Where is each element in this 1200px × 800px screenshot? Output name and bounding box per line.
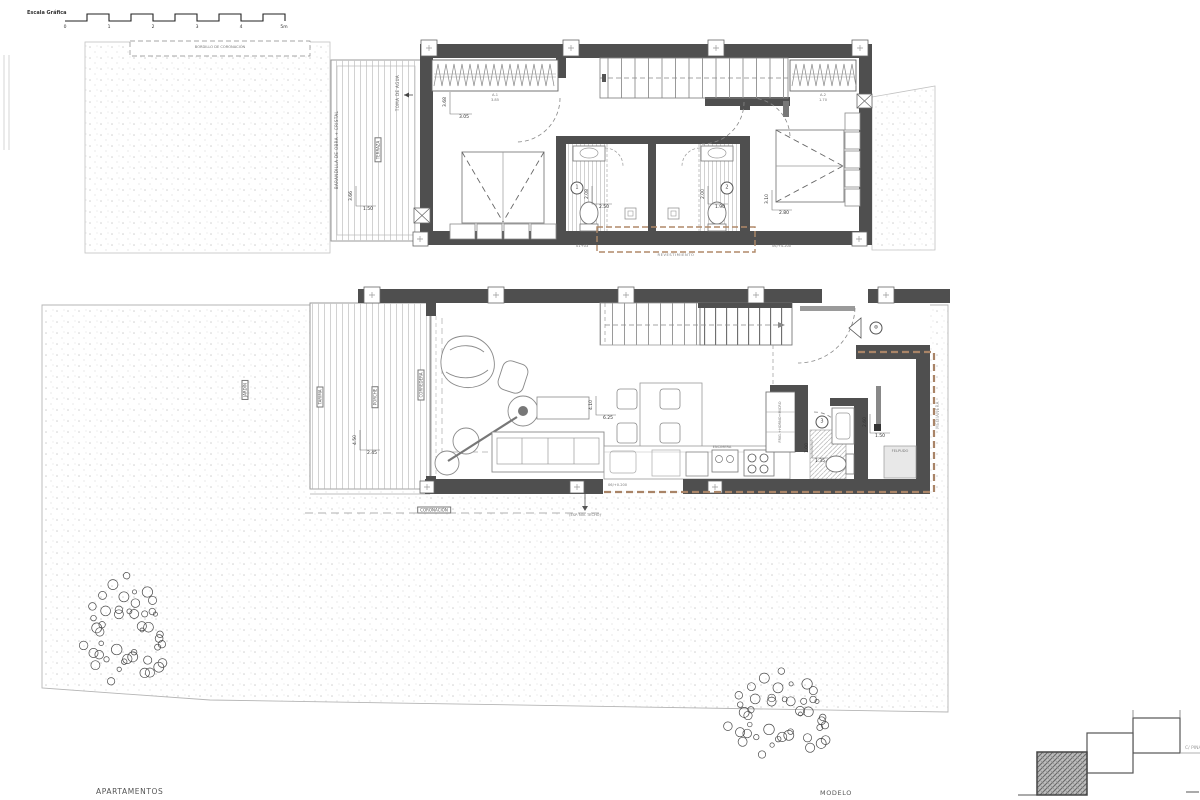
bedroom-1-dim-h: 3.05	[459, 116, 469, 121]
bedroom-2-dim-h: 2.80	[779, 212, 789, 217]
cladding-label: REVESTIMIENTO	[658, 254, 695, 258]
scale-tick-5: 5m	[280, 26, 287, 31]
key-plan	[1018, 710, 1200, 795]
bath-1-dim-h: 2.50	[599, 206, 609, 211]
deck-dim-h: 2.45	[367, 452, 377, 457]
scale-tick-2: 2	[152, 26, 155, 31]
porch-label: PORCHE	[372, 386, 379, 408]
doormat-label: FELPUDO	[892, 450, 909, 454]
project-title: APARTAMENTOS	[96, 788, 163, 796]
bath-3-dim-v: 1.00	[806, 443, 811, 453]
bath-1-dim-v: 2.08	[586, 189, 591, 199]
hall-dim-h: 1.50	[875, 435, 885, 440]
bath-1-number: 1	[571, 182, 584, 195]
tall-units-label: FRIG.+HORNO+MICRO	[779, 401, 783, 442]
living-dim-v: 4.10	[590, 400, 595, 410]
terrace-label: TERRAZA	[375, 138, 382, 163]
scale-bar-title: Escala Gráfica	[27, 11, 67, 16]
ground-floor-plan	[42, 287, 950, 758]
water-tap-label: TOMA DE AGUA	[396, 75, 400, 111]
pergola-label: BORDILLO DE CORONACIÓN	[195, 46, 245, 50]
terrace-dim-v: 3.66	[350, 191, 355, 201]
scale-bar-graphic	[65, 14, 285, 21]
garden-label: JARDÍN	[242, 380, 249, 400]
bath-2-number: 2	[721, 182, 734, 195]
bath-2-dim-h: 1.90	[715, 206, 725, 211]
ceiling-note: (ESP. NIV. TECHO)	[569, 514, 601, 518]
ground-level-note: 06/+0.200	[608, 484, 627, 488]
bath-2-dim-v: 2.00	[702, 189, 707, 199]
counter-label: ENCIMERA	[713, 446, 732, 450]
deck-label: TARIMA	[317, 386, 324, 407]
railing-label: BARANDILLA DE OBRA + CRISTAL	[335, 111, 339, 189]
scale-tick-0: 0	[64, 26, 67, 31]
coping-label: CORONACIÓN	[417, 507, 451, 514]
deck-dim-v: 4.50	[354, 435, 359, 445]
boundary-label: MEDIANERA	[936, 401, 940, 428]
scale-tick-3: 3	[196, 26, 199, 31]
floor-plan-drawing	[0, 0, 1200, 800]
scale-tick-4: 4	[240, 26, 243, 31]
upper-floor-plan	[85, 40, 935, 253]
hall-dim-v: 2.60	[864, 417, 869, 427]
model-title: MODELO	[820, 790, 852, 797]
street-label: C/ PINA	[1185, 747, 1200, 752]
bedroom-2-dim-v: 3.10	[766, 194, 771, 204]
terrace-dim-h: 1.50	[363, 208, 373, 213]
upper-level-note: 06/+4.200	[772, 245, 791, 249]
upper-note-left: 01+03	[576, 245, 588, 249]
slider-label: CORREDERA	[418, 370, 425, 401]
living-dim-h: 6.25	[603, 417, 613, 422]
bath-3-number: 3	[816, 416, 829, 429]
wardrobe-1-width: 3.85	[491, 99, 499, 103]
scale-tick-1: 1	[108, 26, 111, 31]
bedroom-1-dim-v: 3.68	[444, 97, 449, 107]
floor-plan-sheet: Escala Gráfica 0 1 2 3 4 5m BORDILLO DE …	[0, 0, 1200, 800]
entry-symbol: ⊛	[870, 322, 883, 335]
bath-3-dim-h: 1.35	[815, 460, 825, 465]
wardrobe-2-width: 1.70	[819, 99, 827, 103]
